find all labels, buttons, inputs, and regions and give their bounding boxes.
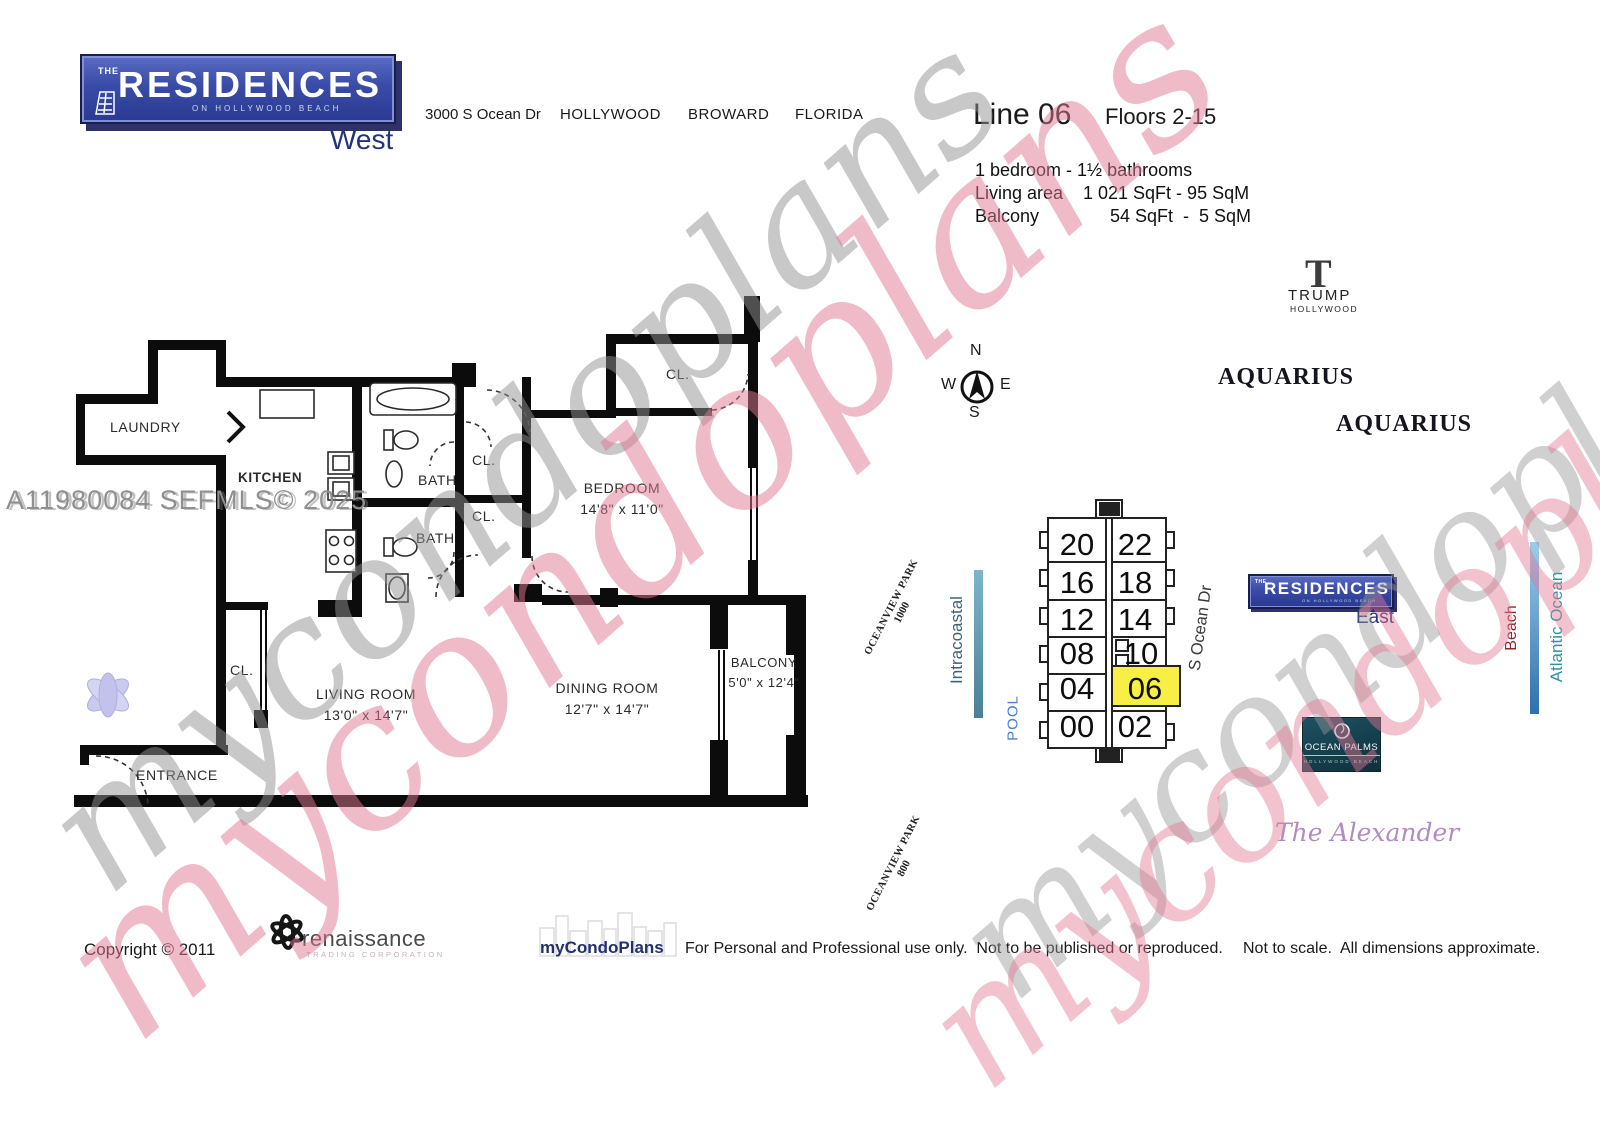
- spec-living-label: Living area: [975, 183, 1063, 204]
- renaissance-name: renaissance: [302, 926, 426, 952]
- logo-the: THE: [98, 66, 119, 76]
- logo-wing-west: West: [330, 124, 393, 156]
- beach-bar: [1530, 542, 1539, 714]
- watermark-script-gray-right: mycondoplans: [923, 185, 1600, 1032]
- room-label-laundry: LAUNDRY: [110, 419, 181, 435]
- unit-08: 08: [1050, 636, 1104, 672]
- residences-east-logo: THE RESIDENCES ON HOLLYWOOD BEACH: [1248, 574, 1394, 609]
- unit-06-highlighted: 06: [1118, 671, 1172, 707]
- room-label-bedroom: BEDROOM: [584, 480, 661, 496]
- unit-12: 12: [1050, 602, 1104, 638]
- unit-02: 02: [1108, 709, 1162, 745]
- room-label-living: LIVING ROOM: [316, 686, 416, 702]
- oceanview-park-north: OCEANVIEW PARK 1000: [863, 558, 931, 662]
- renaissance-sub: TRADING CORPORATION: [306, 950, 445, 959]
- beach-label: Beach: [1503, 605, 1521, 650]
- unit-14: 14: [1108, 602, 1162, 638]
- entrance-label: ENTRANCE: [136, 767, 218, 783]
- walls: [74, 296, 808, 807]
- unit-10: 10: [1114, 636, 1168, 672]
- east-logo-sub: ON HOLLYWOOD BEACH: [1302, 598, 1377, 603]
- unit-00: 00: [1050, 709, 1104, 745]
- east-logo-wing: East: [1356, 607, 1394, 629]
- compass-n: N: [970, 342, 982, 360]
- ocean-palms-ring-icon: [1332, 721, 1352, 741]
- room-dims-balcony: 5'0" x 12'4": [728, 675, 799, 690]
- floors-range: Floors 2-15: [1105, 104, 1216, 130]
- closet-label-hall-2: CL.: [472, 508, 496, 524]
- street-label: S Ocean Dr: [1186, 584, 1217, 672]
- intracoastal-label: Intracoastal: [947, 596, 967, 684]
- usage-notice: For Personal and Professional use only. …: [685, 940, 1223, 958]
- room-dims-living: 13'0" x 14'7": [324, 707, 409, 723]
- room-label-kitchen: KITCHEN: [238, 470, 302, 485]
- door-arcs: [96, 374, 748, 805]
- room-label-dining: DINING ROOM: [555, 680, 658, 696]
- room-label-bath-1: BATH: [418, 472, 457, 488]
- unit-18: 18: [1108, 565, 1162, 601]
- spec-balcony-value: 54 SqFt - 5 SqM: [1110, 206, 1251, 227]
- room-label-bath-2: BATH: [416, 530, 455, 546]
- spec-living-value: 1 021 SqFt - 95 SqM: [1083, 183, 1249, 204]
- unit-22: 22: [1108, 527, 1162, 563]
- ocean-palms-sub: HOLLYWOOD BEACH: [1303, 759, 1380, 764]
- closet-label-bedroom: CL.: [666, 366, 690, 382]
- trump-sub: HOLLYWOOD: [1290, 304, 1358, 314]
- oceanview-park-south: OCEANVIEW PARK 800: [865, 814, 933, 918]
- mycondoplans-logo-text: myCondoPlans: [540, 938, 664, 958]
- atlantic-ocean-label: Atlantic Ocean: [1547, 572, 1567, 683]
- logo-main: RESIDENCES: [118, 64, 382, 106]
- copyright-text: Copyright © 2011: [84, 940, 215, 960]
- compass-e: E: [1000, 376, 1011, 394]
- watermark-script-gray-left: mycondoplans: [7, 0, 1039, 928]
- bifold-door-icon: [228, 412, 243, 442]
- closet-label-living: CL.: [230, 662, 254, 678]
- address-state: FLORIDA: [795, 106, 864, 123]
- unit-16: 16: [1050, 565, 1104, 601]
- address-county: BROWARD: [688, 106, 769, 123]
- logo-building-icon: [90, 86, 120, 116]
- renaissance-trefoil-icon: [270, 916, 304, 949]
- unit-04: 04: [1050, 671, 1104, 707]
- compass-icon: [962, 371, 992, 402]
- address: 3000 S Ocean Dr: [425, 106, 541, 123]
- watermark-script-pink-right: mycondoplans: [889, 219, 1600, 1124]
- ocean-palms-logo: OCEAN PALMS HOLLYWOOD BEACH: [1302, 717, 1381, 772]
- compass-w: W: [941, 376, 956, 394]
- alexander-label: The Alexander: [1275, 818, 1459, 847]
- mls-watermark: A11980084 SEFMLS© 2025: [6, 485, 367, 516]
- logo-sub: ON HOLLYWOOD BEACH: [192, 104, 341, 113]
- room-label-balcony: BALCONY: [731, 655, 797, 670]
- address-city: HOLLYWOOD: [560, 106, 661, 123]
- fixtures: [260, 383, 456, 602]
- compass-s: S: [969, 404, 980, 422]
- line-title: Line 06: [973, 98, 1071, 132]
- residences-west-logo: THE RESIDENCES ON HOLLYWOOD BEACH: [80, 54, 396, 124]
- intracoastal-bar: [974, 570, 983, 718]
- east-logo-main: RESIDENCES: [1264, 579, 1390, 599]
- spec-balcony-label: Balcony: [975, 206, 1039, 227]
- trump-name: TRUMP: [1288, 287, 1351, 304]
- spec-bedrooms: 1 bedroom - 1½ bathrooms: [975, 160, 1192, 181]
- butterfly-icon: [83, 673, 134, 717]
- closet-label-hall-1: CL.: [472, 452, 496, 468]
- room-dims-bedroom: 14'8" x 11'0": [580, 501, 664, 517]
- pool-label: POOL: [1005, 695, 1022, 741]
- room-dims-dining: 12'7" x 14'7": [565, 701, 650, 717]
- aquarius-label-1: AQUARIUS: [1218, 364, 1354, 391]
- unit-20: 20: [1050, 527, 1104, 563]
- scale-notice: Not to scale. All dimensions approximate…: [1243, 940, 1540, 958]
- aquarius-label-2: AQUARIUS: [1336, 411, 1472, 438]
- floorplan-graphics: [0, 0, 1600, 1020]
- ocean-palms-name: OCEAN PALMS: [1303, 742, 1380, 756]
